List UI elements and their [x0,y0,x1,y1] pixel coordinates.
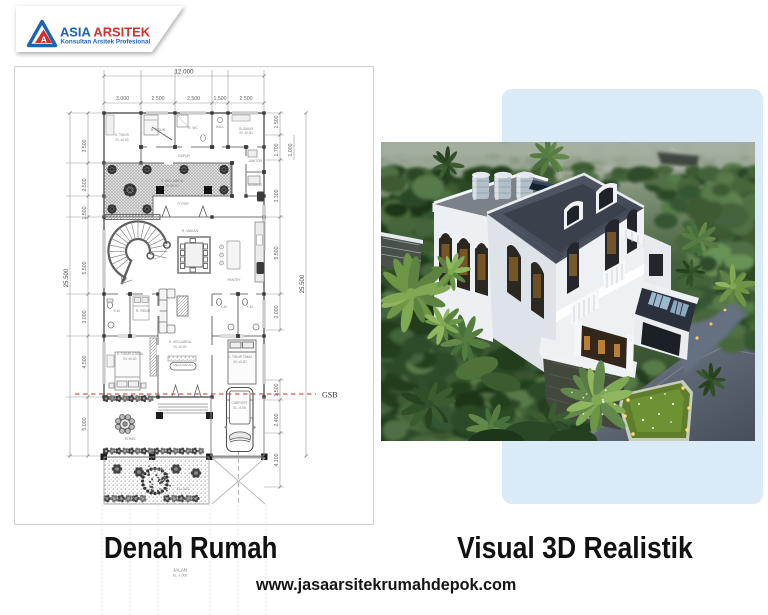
svg-text:JALAN: JALAN [173,568,187,573]
svg-text:EL ±0.00: EL ±0.00 [123,357,136,361]
svg-text:5.500: 5.500 [274,246,280,259]
svg-text:EL -0.05: EL -0.05 [233,406,246,410]
svg-text:JANITOR: JANITOR [248,159,263,163]
svg-text:EL ±0.00: EL ±0.00 [239,131,252,135]
svg-text:EL -1.000: EL -1.000 [173,574,188,578]
svg-text:Konsultan Arsitek Profesional: Konsultan Arsitek Profesional [61,39,151,46]
svg-text:HALL: HALL [216,125,224,129]
svg-text:DAPUR: DAPUR [178,154,190,158]
svg-text:K.M.: K.M. [114,309,121,313]
svg-text:1.000: 1.000 [288,143,294,156]
svg-text:25.500: 25.500 [300,274,306,293]
svg-text:1.700: 1.700 [274,143,280,156]
svg-text:2.500: 2.500 [152,96,165,102]
svg-text:A: A [41,35,47,45]
svg-text:K.M.: K.M. [247,305,254,309]
svg-text:1.500: 1.500 [214,96,227,102]
svg-text:2.400: 2.400 [274,413,280,426]
svg-text:CARPORT: CARPORT [231,401,247,405]
svg-text:1.500: 1.500 [82,206,88,219]
svg-text:GUDANG: GUDANG [248,183,263,187]
svg-text:4.500: 4.500 [82,355,88,368]
svg-text:R. KELUARGA: R. KELUARGA [169,340,192,344]
svg-text:3.300: 3.300 [274,189,280,202]
svg-text:K. TIDUR: K. TIDUR [115,133,130,137]
svg-text:2.500: 2.500 [240,96,253,102]
svg-text:K. TIDUR UTAMA: K. TIDUR UTAMA [117,352,144,356]
svg-text:R. MAKAN: R. MAKAN [182,229,199,233]
svg-text:K. TIDUR TAMU: K. TIDUR TAMU [228,355,253,359]
svg-text:1.500: 1.500 [274,115,280,128]
svg-text:R. WC: R. WC [188,126,198,130]
svg-text:FOYER: FOYER [177,202,189,206]
svg-text:R. TIDUR: R. TIDUR [136,309,151,313]
svg-text:MEJA MAKAN: MEJA MAKAN [173,363,192,367]
svg-text:5.000: 5.000 [82,417,88,430]
svg-text:2.500: 2.500 [82,178,88,191]
svg-text:GSB: GSB [322,391,338,400]
svg-text:4.100: 4.100 [274,453,280,466]
svg-text:3.000: 3.000 [82,310,88,323]
svg-text:EL ±0.00: EL ±0.00 [233,360,246,364]
svg-text:ASIA ARSITEK: ASIA ARSITEK [60,25,151,40]
svg-text:R. TIDUR: R. TIDUR [151,128,166,132]
svg-text:3.000: 3.000 [116,96,129,102]
svg-text:25.500: 25.500 [64,268,70,287]
svg-text:3.500: 3.500 [82,139,88,152]
svg-text:R. KELUARGA: R. KELUARGA [161,179,184,183]
svg-text:EL ±0.00: EL ±0.00 [173,345,186,349]
svg-text:K.M.: K.M. [221,305,228,309]
svg-text:2.000: 2.000 [274,305,280,318]
svg-text:PANTRY: PANTRY [227,278,241,282]
svg-text:5.500: 5.500 [82,261,88,274]
svg-text:2.500: 2.500 [187,96,200,102]
svg-text:EL -0.10: EL -0.10 [177,487,190,491]
svg-text:TERAS: TERAS [125,437,137,441]
svg-text:TAMAN: TAMAN [150,467,162,471]
svg-text:EL ±0.00: EL ±0.00 [115,138,128,142]
svg-text:EL ±0.00: EL ±0.00 [165,184,178,188]
